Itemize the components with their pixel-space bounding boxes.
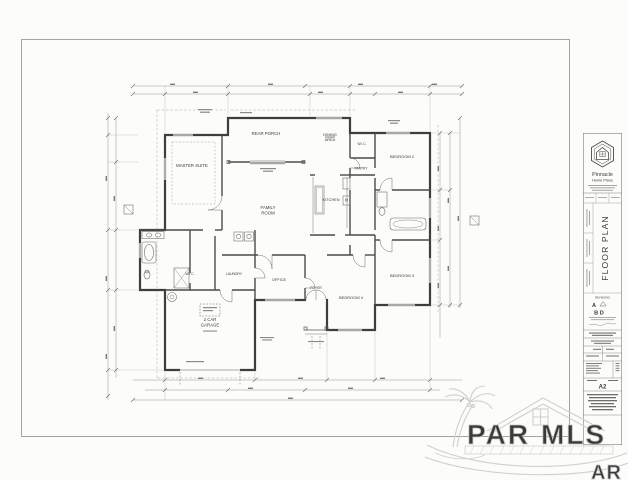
room-labels: MASTER SUITE REAR PORCH DINING AREA W.I.… <box>176 131 415 328</box>
floor-plan-drawing: MASTER SUITE REAR PORCH DINING AREA W.I.… <box>100 78 480 408</box>
room-label-family: FAMILY <box>261 205 276 210</box>
titleblock-header-strip <box>583 193 622 203</box>
dimension-lines <box>106 84 464 402</box>
revision-delta-icon <box>600 302 606 307</box>
signature-squiggle <box>589 323 616 325</box>
sheet-title-area: FLOOR PLAN <box>583 203 622 293</box>
room-label-kitchen: KITCHEN <box>322 197 339 202</box>
scanned-floor-plan-sheet: MASTER SUITE REAR PORCH DINING AREA W.I.… <box>0 0 628 480</box>
room-label-wic-hall: W.I.C. <box>358 142 367 146</box>
room-label-foyer: FOYER <box>310 286 322 290</box>
watermark-word-par: PAR <box>467 419 530 450</box>
mls-watermark: PAR MLS AR <box>425 383 628 480</box>
room-label-family-2: ROOM <box>261 211 275 216</box>
door-swings <box>208 158 392 302</box>
room-label-rear-porch: REAR PORCH <box>252 131 281 136</box>
room-label-garage-2: GARAGE <box>201 323 220 328</box>
revision-mark-bd: B D <box>594 311 604 317</box>
room-label-wic-master: W.I.C. <box>186 272 195 276</box>
dimension-numerals-illegible <box>106 84 459 399</box>
exterior-walls <box>140 118 430 370</box>
watermark-word-mls: MLS <box>541 419 606 450</box>
revisions-heading: REVISIONS <box>595 296 610 300</box>
revisions-block: REVISIONS A B D <box>589 296 616 326</box>
room-label-dining-2: AREA <box>325 137 336 142</box>
room-label-bedroom-4: BEDROOM 4 <box>339 295 364 300</box>
pinnacle-logo-icon <box>592 141 614 167</box>
sheet-title: FLOOR PLAN <box>600 215 610 280</box>
room-label-garage: 2 CAR <box>204 317 217 322</box>
company-name-line2: Home Plans <box>592 179 613 183</box>
room-label-pantry: PANTRY <box>354 167 368 171</box>
window-openings <box>138 116 432 372</box>
revision-mark-a: A <box>592 303 596 309</box>
dimension-ticks <box>106 84 464 402</box>
company-address-illegible <box>588 185 617 191</box>
fixtures <box>124 142 479 386</box>
room-label-office: OFFICE <box>272 277 287 282</box>
watermark-corner-letters: AR <box>591 462 622 480</box>
room-label-bedroom-2: BEDROOM 2 <box>390 154 415 159</box>
company-name-line1: Pinnacle <box>592 172 613 178</box>
roof-overhang-dashed-lines <box>157 110 438 378</box>
room-label-master-suite: MASTER SUITE <box>176 163 208 168</box>
room-label-laundry: LAUNDRY <box>226 272 243 276</box>
room-label-bedroom-3: BEDROOM 3 <box>390 273 415 278</box>
